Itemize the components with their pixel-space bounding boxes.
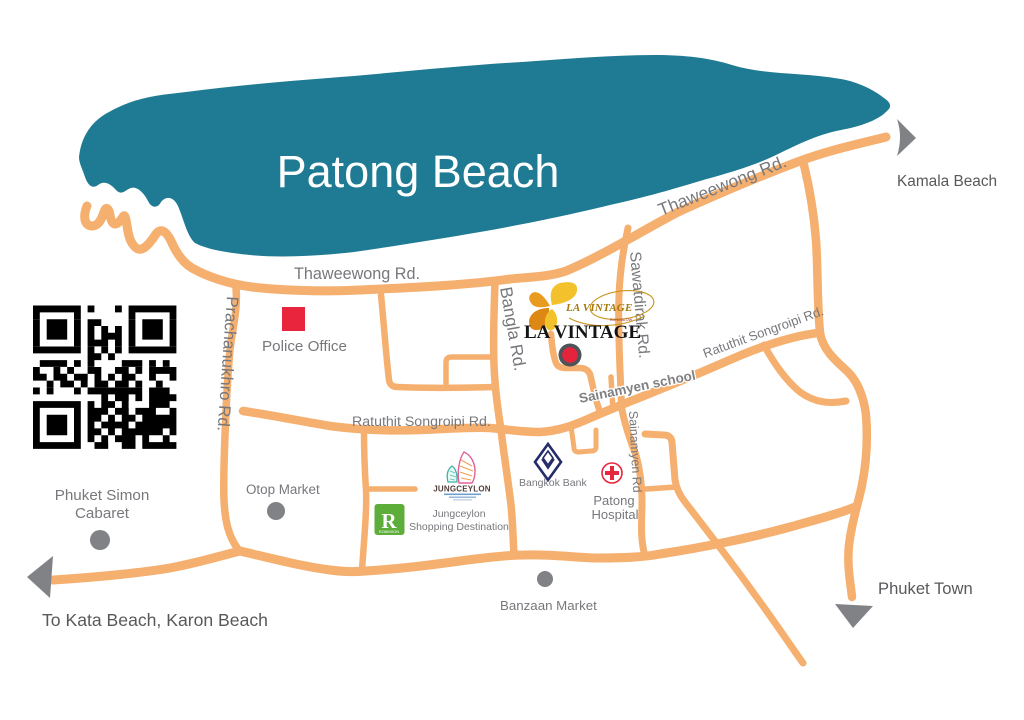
svg-text:Otop Market: Otop Market (246, 482, 320, 497)
svg-text:JUNGCEYLON: JUNGCEYLON (433, 485, 491, 494)
svg-text:Phuket Simon: Phuket Simon (55, 487, 150, 504)
svg-text:Shopping Destination: Shopping Destination (409, 521, 509, 533)
svg-text:Bangkok Bank: Bangkok Bank (519, 477, 587, 489)
svg-text:Thaweewong Rd.: Thaweewong Rd. (294, 265, 420, 283)
svg-text:Ratuthit Songroipi Rd.: Ratuthit Songroipi Rd. (352, 414, 491, 430)
svg-text:Kamala Beach: Kamala Beach (897, 173, 997, 190)
svg-text:ROBINSON: ROBINSON (379, 530, 400, 534)
svg-text:Phuket Town: Phuket Town (878, 579, 973, 598)
svg-text:To Kata Beach, Karon Beach: To Kata Beach, Karon Beach (42, 610, 268, 630)
svg-text:Patong: Patong (593, 493, 634, 508)
svg-text:Jungceylon: Jungceylon (432, 508, 485, 520)
svg-text:Police Office: Police Office (262, 338, 347, 355)
svg-text:Banzaan Market: Banzaan Market (500, 598, 597, 613)
svg-text:Prachanukhro Rd.: Prachanukhro Rd. (214, 296, 242, 432)
svg-text:Hospital: Hospital (592, 507, 639, 522)
svg-text:Patong Beach: Patong Beach (277, 146, 560, 197)
svg-text:Cabaret: Cabaret (75, 505, 130, 522)
svg-text:Sainamyen Rd: Sainamyen Rd (626, 410, 644, 493)
svg-text:LA VINTAGE: LA VINTAGE (565, 302, 633, 314)
svg-text:LA VINTAGE: LA VINTAGE (524, 322, 641, 343)
